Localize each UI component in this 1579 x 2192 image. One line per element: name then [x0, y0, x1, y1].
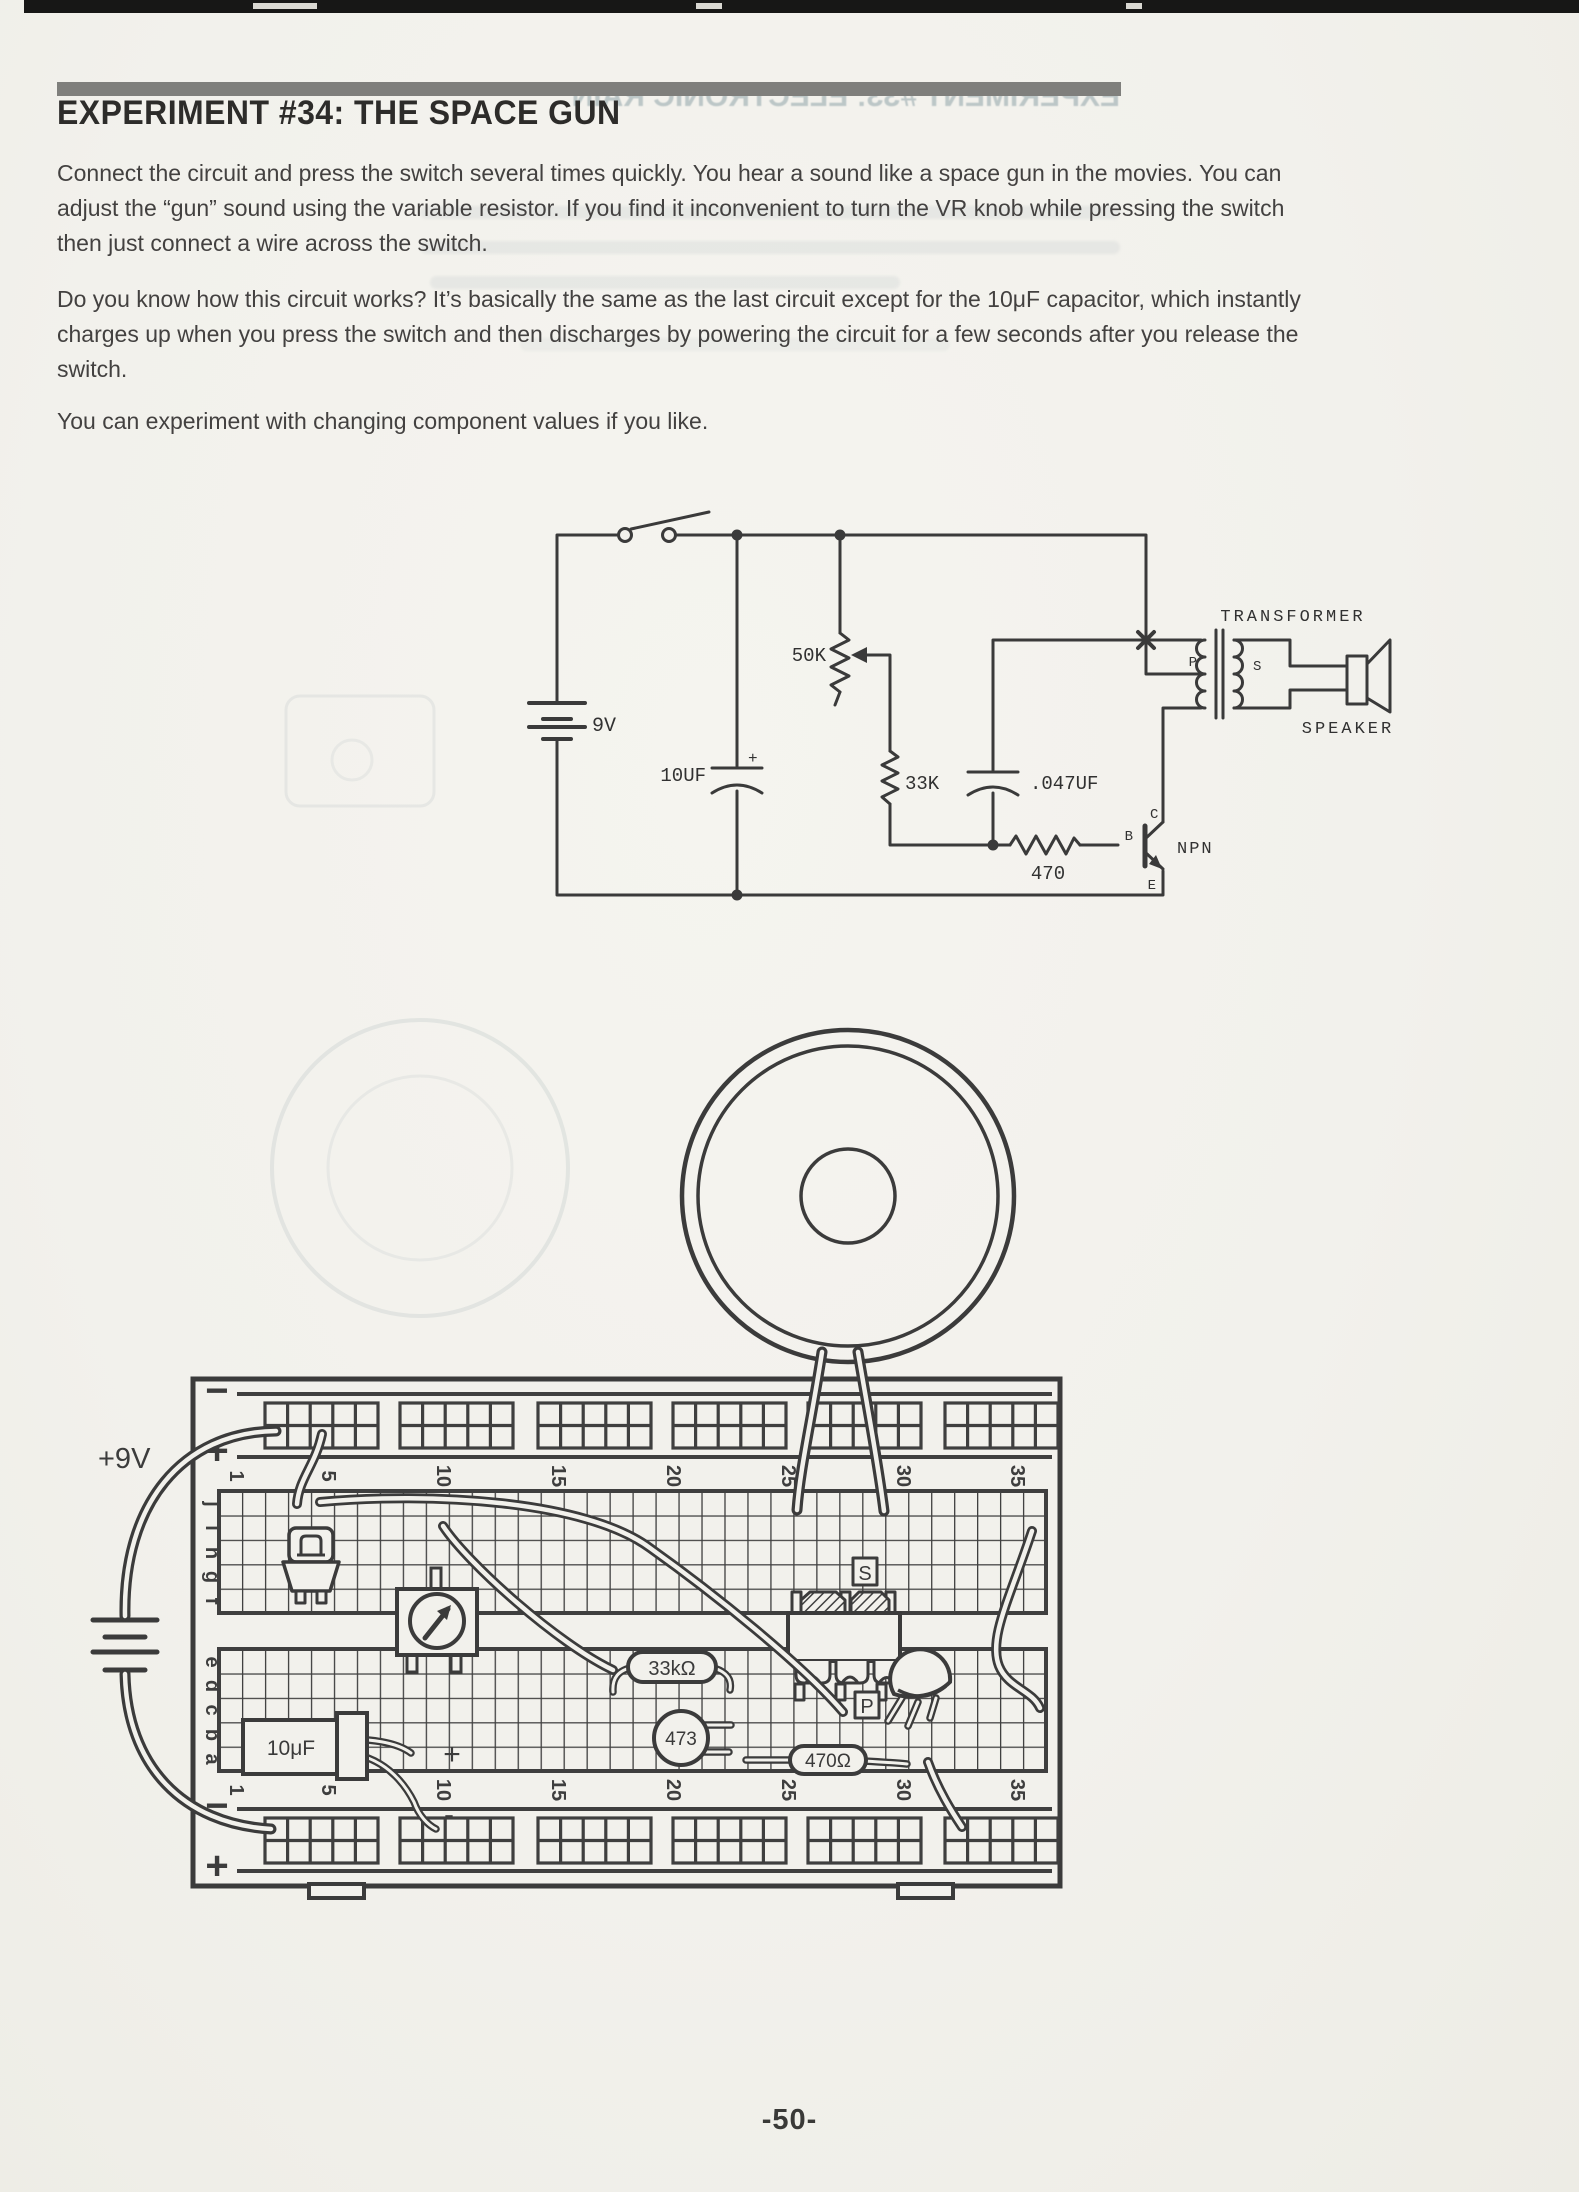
wire	[557, 535, 1201, 895]
terminal-block-top	[219, 1491, 1046, 1613]
body-line: Do you know how this circuit works? It’s…	[57, 282, 1301, 317]
body-line: charges up when you press the switch and…	[57, 317, 1301, 352]
rail-minus-top: −	[205, 1369, 228, 1413]
row-letter: g	[201, 1571, 223, 1583]
row-letter: e	[201, 1656, 223, 1667]
col-number: 15	[547, 1465, 569, 1487]
body-line: then just connect a wire across the swit…	[57, 226, 1284, 261]
breadboard-board	[193, 1379, 1060, 1898]
battery-symbol	[529, 703, 585, 739]
col-number: 5	[317, 1470, 339, 1481]
cap-047-label: .047UF	[1030, 773, 1098, 795]
battery-9v-symbol	[93, 1620, 157, 1670]
resistor-33k-component: 33kΩ	[628, 1652, 716, 1682]
col-number: 30	[892, 1465, 914, 1487]
pin-e-label: E	[1148, 878, 1156, 894]
primary-label: P	[1189, 655, 1197, 671]
npn-label: NPN	[1177, 840, 1214, 859]
capacitor-10uf-symbol	[712, 768, 762, 793]
capacitor-473-component: 473	[654, 1711, 708, 1765]
col-number: 5	[317, 1784, 339, 1795]
board-foot	[309, 1884, 364, 1898]
rail-plus-bottom: +	[205, 1844, 228, 1888]
transformer-symbol	[1197, 630, 1348, 718]
col-number: 1	[225, 1470, 247, 1481]
transformer-label: TRANSFORMER	[1220, 608, 1365, 627]
col-number: 20	[662, 1779, 684, 1801]
transistor-component	[890, 1649, 950, 1696]
row-letter: d	[201, 1680, 223, 1692]
plus-hole-mark: +	[443, 1738, 461, 1771]
row-letter: f	[201, 1598, 223, 1605]
paragraph-2: Do you know how this circuit works? It’s…	[57, 282, 1301, 387]
row-letter: a	[201, 1753, 223, 1765]
col-number: 1	[225, 1784, 247, 1795]
col-number: 25	[777, 1779, 799, 1801]
resistor-33k-symbol	[882, 751, 898, 804]
capacitor-473-label: 473	[665, 1729, 697, 1750]
speaker-illustration	[682, 1030, 1014, 1362]
board-foot	[898, 1884, 953, 1898]
body-line: switch.	[57, 352, 1301, 387]
resistor-470-component: 470Ω	[790, 1746, 866, 1774]
capacitor-10uf-label: 10μF	[267, 1737, 315, 1760]
potentiometer-50k-symbol	[831, 633, 867, 705]
paragraph-1: Connect the circuit and press the switch…	[57, 156, 1284, 261]
circuit-schematic: 9V 10UF + 50K 33K .047UF 470 NPN B C E T…	[470, 500, 1470, 920]
key-switch-component	[283, 1528, 339, 1603]
speaker-label: SPEAKER	[1302, 720, 1394, 739]
res-470-label: 470	[1031, 863, 1065, 885]
row-letter: i	[201, 1525, 223, 1531]
cap-10uf-label: 10UF	[660, 765, 706, 787]
transformer-s-label: S	[858, 1563, 871, 1585]
cap-10uf-polarity: +	[748, 750, 758, 768]
body-line: You can experiment with changing compone…	[57, 404, 708, 439]
vr-50k-label: 50K	[792, 645, 827, 667]
npn-transistor-symbol	[1145, 822, 1163, 869]
transformer-hatched-lead	[851, 1592, 889, 1613]
row-letter: j	[201, 1500, 223, 1507]
speaker-symbol	[1347, 640, 1390, 712]
col-number: 20	[662, 1465, 684, 1487]
switch-symbol	[619, 512, 710, 542]
breadboard-figure: − + − + 1 5 10 15 20 25 30 35 1 5 10 15 …	[40, 985, 1110, 1915]
pin-b-label: B	[1125, 829, 1133, 845]
minus-hole-mark: -	[444, 1798, 454, 1831]
row-letter: h	[201, 1547, 223, 1559]
pin-c-label: C	[1150, 807, 1158, 823]
supply-label: +9V	[98, 1443, 151, 1475]
res-33k-label: 33K	[905, 773, 940, 795]
row-letter: b	[201, 1729, 223, 1741]
secondary-label: S	[1253, 659, 1261, 675]
col-number: 15	[547, 1779, 569, 1801]
scanned-manual-page: EXPERIMENT #33: ELECTRONIC RAIN EXPERIME…	[0, 0, 1579, 2192]
paragraph-3: You can experiment with changing compone…	[57, 404, 708, 439]
battery-label: 9V	[592, 715, 616, 738]
col-number: 10	[432, 1465, 454, 1487]
resistor-470-symbol	[1010, 836, 1080, 854]
transformer-p-label: P	[860, 1696, 873, 1718]
page-number: -50-	[0, 2104, 1579, 2137]
body-line: adjust the “gun” sound using the variabl…	[57, 191, 1284, 226]
body-line: Connect the circuit and press the switch…	[57, 156, 1284, 191]
resistor-470-label: 470Ω	[805, 1751, 851, 1772]
capacitor-10uf-component: 10μF	[243, 1713, 367, 1779]
resistor-33k-label: 33kΩ	[648, 1658, 695, 1680]
row-letter: c	[201, 1704, 223, 1715]
page-title: EXPERIMENT #34: THE SPACE GUN	[57, 94, 621, 133]
col-number: 35	[1006, 1779, 1028, 1801]
col-number: 30	[892, 1779, 914, 1801]
transformer-hatched-lead	[801, 1592, 845, 1613]
col-number: 35	[1006, 1465, 1028, 1487]
